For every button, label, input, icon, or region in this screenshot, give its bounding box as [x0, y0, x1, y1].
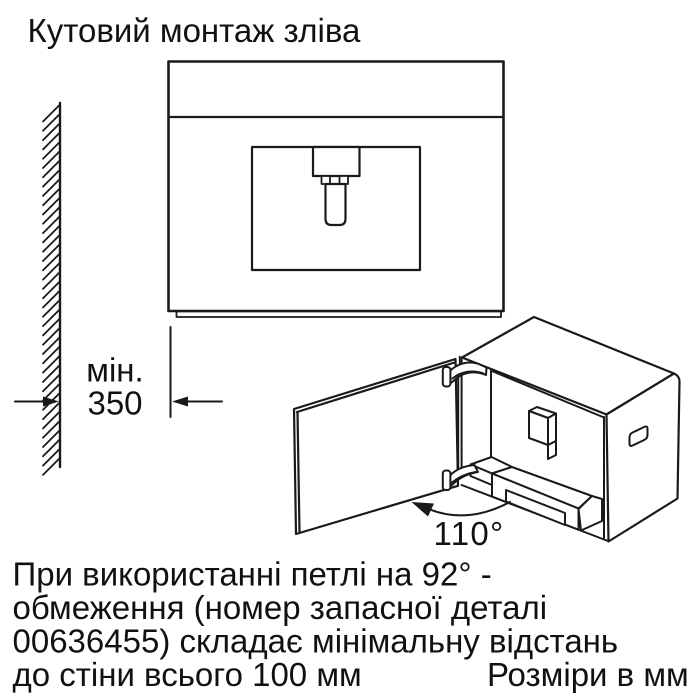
svg-text:110°: 110° — [434, 515, 505, 552]
svg-text:обмеження (номер запасної дета: обмеження (номер запасної деталі — [13, 589, 548, 626]
svg-text:350: 350 — [87, 385, 142, 422]
svg-text:00636455) складає мінімальну в: 00636455) складає мінімальну відстань — [13, 623, 619, 660]
svg-text:Кутовий монтаж зліва: Кутовий монтаж зліва — [28, 12, 361, 49]
svg-text:до стіни всього 100 мм: до стіни всього 100 мм — [13, 656, 362, 693]
svg-text:При використанні петлі на 92°: При використанні петлі на 92° - — [13, 556, 492, 593]
svg-text:мін.: мін. — [86, 352, 143, 389]
svg-text:Розміри в мм: Розміри в мм — [487, 656, 689, 693]
